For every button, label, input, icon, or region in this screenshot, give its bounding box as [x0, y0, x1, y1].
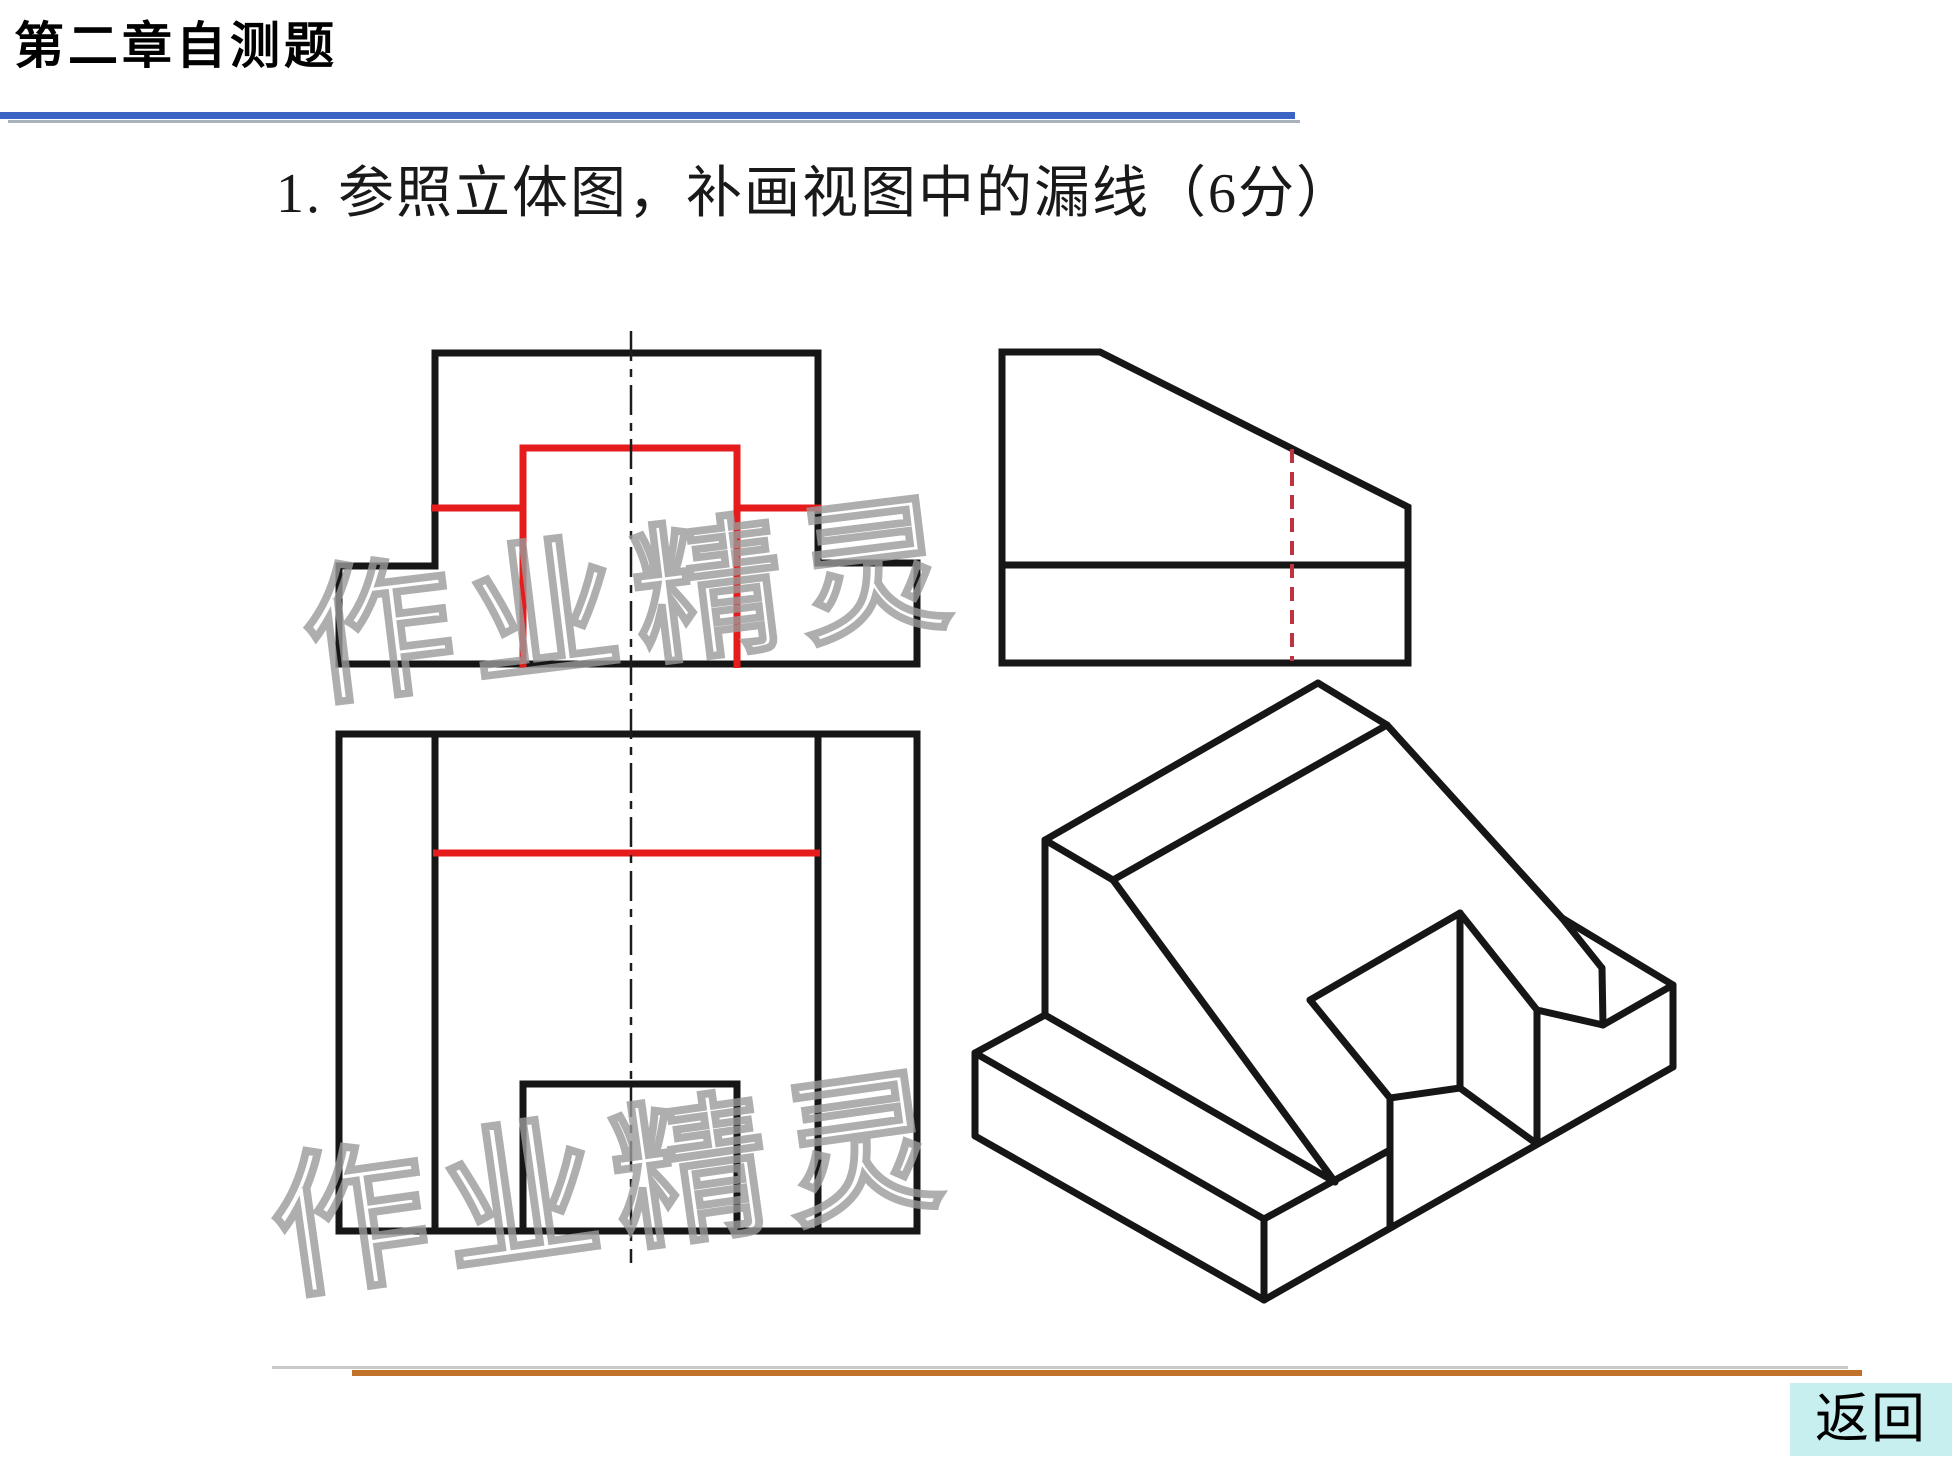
isometric-edge — [1045, 840, 1113, 880]
isometric-edge — [1390, 1088, 1460, 1098]
slide: { "window": { "width": 1955, "height": 1… — [0, 0, 1955, 1462]
isometric-edge — [975, 1015, 1045, 1053]
isometric-edge — [1318, 683, 1387, 725]
isometric-view — [975, 683, 1673, 1300]
isometric-edge — [1603, 985, 1673, 1025]
isometric-edge — [1264, 1150, 1390, 1219]
isometric-edge — [1045, 683, 1318, 840]
isometric-edge — [1387, 725, 1562, 918]
side-view — [1002, 352, 1408, 663]
footer-rule-shadow — [272, 1366, 1848, 1369]
footer-rule-orange — [352, 1370, 1862, 1376]
isometric-edge — [1310, 913, 1460, 1000]
isometric-edge — [1460, 1088, 1537, 1144]
isometric-edge — [975, 1136, 1264, 1300]
isometric-edge — [1562, 918, 1673, 985]
engineering-drawing-canvas: 作业精灵作业精灵 — [0, 0, 1955, 1462]
isometric-edge — [1460, 913, 1537, 1010]
watermark-text: 作业精灵 — [294, 475, 974, 729]
isometric-edge — [1045, 1015, 1335, 1182]
isometric-edge — [1602, 968, 1603, 1025]
watermark-text: 作业精灵 — [260, 1047, 967, 1323]
watermarks: 作业精灵作业精灵 — [260, 475, 974, 1322]
drawing-line — [1002, 352, 1408, 663]
back-button[interactable]: 返回 — [1790, 1383, 1952, 1456]
isometric-edge — [1113, 880, 1335, 1182]
isometric-edge — [1310, 1000, 1390, 1098]
isometric-edge — [975, 1053, 1264, 1219]
isometric-edge — [1113, 725, 1387, 880]
isometric-edge — [1537, 1010, 1603, 1025]
